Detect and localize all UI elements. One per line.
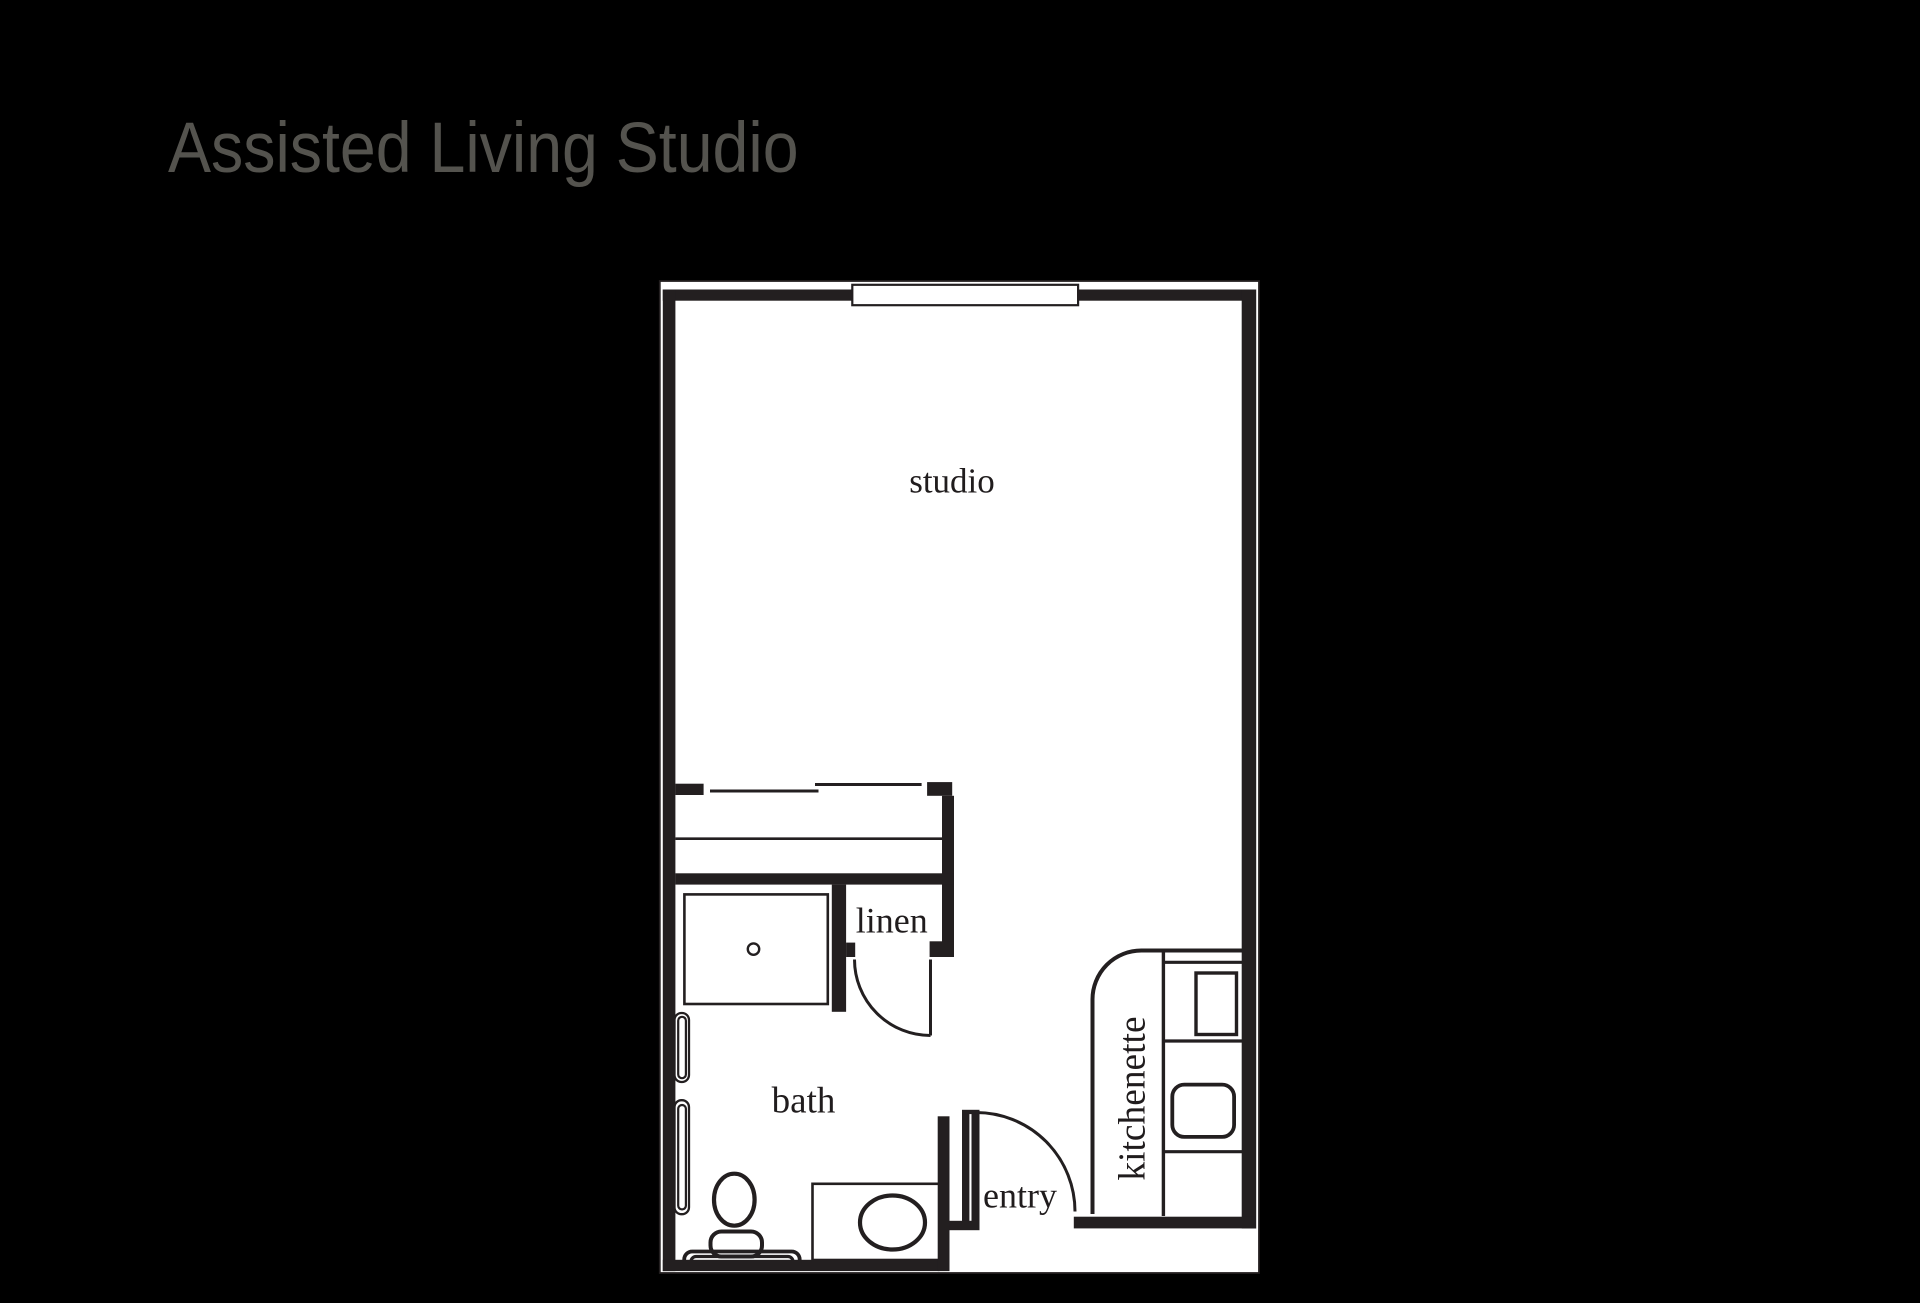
- svg-text:entry: entry: [983, 1176, 1057, 1216]
- svg-text:bath: bath: [772, 1081, 836, 1122]
- svg-text:kitchenette: kitchenette: [1111, 1016, 1153, 1180]
- svg-text:Assisted Living Studio: Assisted Living Studio: [168, 109, 799, 188]
- svg-text:linen: linen: [856, 901, 928, 941]
- svg-text:studio: studio: [909, 462, 995, 501]
